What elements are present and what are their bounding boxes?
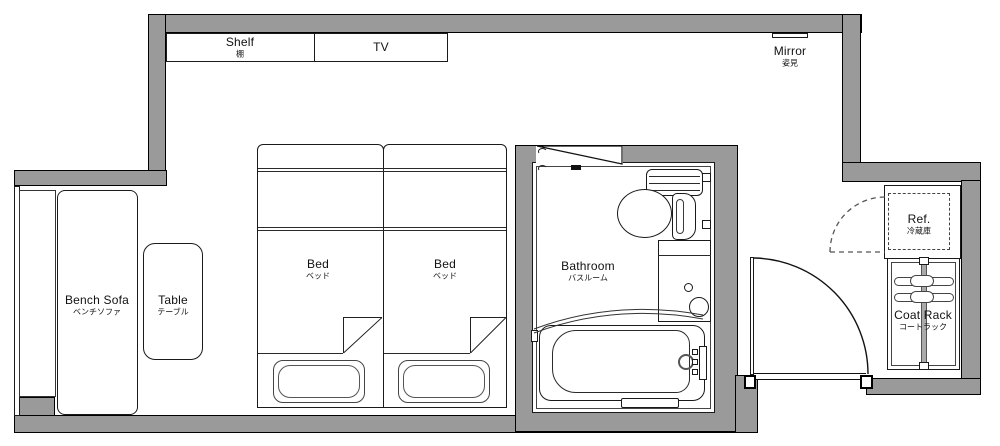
tub-wall-tab [531,330,538,342]
door-jamb-left [744,375,756,389]
wall-top-left-vertical [148,14,166,186]
floor-plan: Shelf 棚 TV Mirror 姿見 Bench Sofa ベンチソファ T… [0,0,1000,446]
pillow-left [273,360,365,403]
vanity-sink [689,297,709,317]
shelf-label: Shelf [226,35,254,49]
bathroom-label-ja: バスルーム [568,273,608,284]
tub-faucet-knob-1 [692,349,698,355]
vanity-counter-edge [658,255,711,256]
mirror [772,33,808,38]
bed-duvet-line-2 [258,230,506,231]
bathroom-door-opening [536,146,623,163]
door-jamb-right [860,375,873,389]
bath-shelf-slat-1 [649,176,700,177]
bath-wall-mount-1 [702,173,711,182]
wall-right [961,180,981,395]
bed-head-line-1 [258,168,506,169]
bench-sofa-label: Bench Sofa [65,293,129,307]
coat-rack-label-ja: コートラック [899,322,947,333]
refrigerator-label-ja: 冷蔵庫 [907,226,931,237]
bed-right-blanket-edge [384,353,470,354]
wall-top [148,14,862,33]
table-label: Table [158,293,188,307]
refrigerator-label: Ref. [908,212,931,226]
toilet-tank-lid [676,199,684,234]
pillow-right [398,360,490,403]
bed-right-label: Bed [434,257,456,271]
mirror-label: Mirror [774,44,807,58]
pillow-right-seam [403,365,485,398]
tub-faucet-panel [699,346,707,380]
bed-left-label-ja: ベッド [306,271,330,282]
bathroom-label: Bathroom [561,259,615,273]
coat-rack-rail-top-mount [919,257,929,265]
entry-door-leaf [750,257,754,375]
coat-rack-rail-bottom-mount [919,362,929,370]
bed-head-line-2 [258,171,506,172]
table-label-ja: テーブル [157,307,189,318]
bath-shelf-slat-2 [649,183,700,184]
bed-left-label: Bed [307,257,329,271]
coat-rack-label: Coat Rack [894,308,952,322]
bath-wall-mount-2 [702,220,711,229]
bed-right-label-ja: ベッド [433,271,457,282]
window-sill [19,190,56,397]
tub-faucet-knob-3 [692,369,698,375]
wall-bottom-right [866,378,981,395]
mirror-label-ja: 姿見 [782,58,798,69]
hanger-1-hook [910,275,934,287]
bathtub-step [621,398,679,408]
bathtub-basin [552,330,690,393]
bed-duvet-line-1 [258,227,506,228]
entry-door-swing-arc [754,258,868,374]
hanger-2-hook [910,291,934,303]
wall-top-right-vertical [842,14,861,182]
bed-left-blanket-edge [258,353,343,354]
vanity-faucet [684,283,693,292]
tv-label: TV [373,40,389,54]
bathroom-door-latch [571,165,581,170]
entry-threshold [754,373,866,380]
toilet-bowl [617,189,672,238]
wall-top-right-step [842,162,981,182]
wall-left-step [14,170,167,186]
bench-sofa-label-ja: ベンチソファ [73,307,121,318]
fridge-door-swing-arc [830,197,885,252]
pillow-left-seam [278,365,360,398]
tub-faucet-knob-2 [692,359,698,365]
shelf-label-ja: 棚 [236,49,244,60]
